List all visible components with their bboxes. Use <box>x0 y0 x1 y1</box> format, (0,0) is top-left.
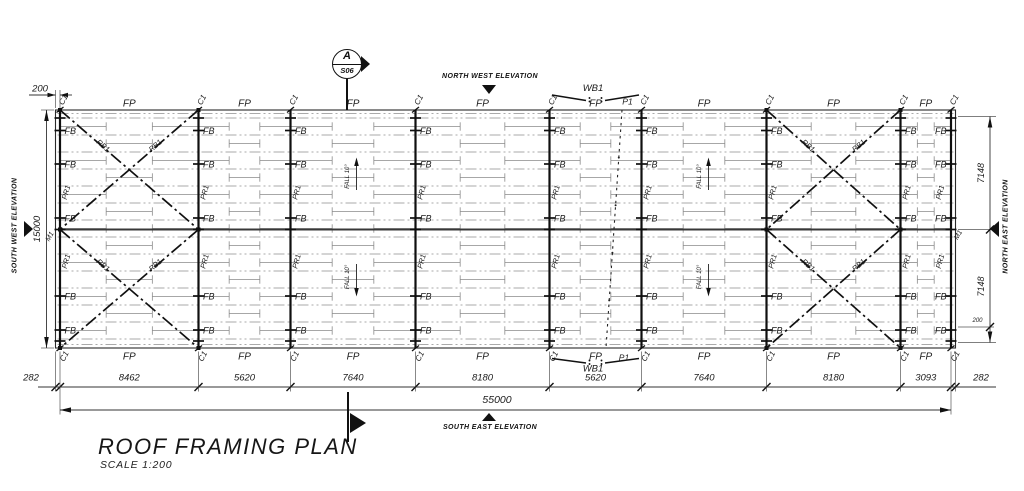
pr1-label: PR1 <box>198 184 210 200</box>
p1-node <box>608 299 610 301</box>
fall-arrowhead <box>354 288 359 297</box>
north-west-elevation-label: NORTH WEST ELEVATION <box>430 73 550 80</box>
dim-text: 7148 <box>976 276 986 296</box>
pr1-label: PR1 <box>549 253 561 269</box>
dim-text: 7640 <box>693 373 715 384</box>
fb-label: FB <box>905 160 917 170</box>
fb-label: FB <box>420 160 432 170</box>
section-sheet-number: S06 <box>333 65 361 79</box>
dim-arrow <box>940 407 951 412</box>
fb-label: FB <box>420 214 432 224</box>
dim-text: 3093 <box>915 373 937 384</box>
rb1-label: RB1 <box>850 137 867 153</box>
dim-text: 200 <box>31 84 49 95</box>
dim-text: 7148 <box>976 163 986 183</box>
dim-text: 5620 <box>234 373 256 384</box>
fp-label: FP <box>919 352 932 363</box>
pr1-label: PR1 <box>900 253 912 269</box>
pr1-label: PR1 <box>934 184 946 200</box>
pr1-label: PR1 <box>290 184 302 200</box>
c1-label: C1 <box>195 93 208 106</box>
fp-label: FP <box>238 99 251 110</box>
p1-node <box>611 252 613 254</box>
pr1-label: PR1 <box>290 253 302 269</box>
south-east-elevation-triangle-icon <box>482 413 496 421</box>
pr1-label: PR1 <box>198 253 210 269</box>
brace-node <box>58 108 62 112</box>
fall-label: FALL 10° <box>345 164 351 189</box>
p1-node <box>615 204 617 206</box>
brace-node <box>899 108 903 112</box>
section-letter: A <box>333 50 361 65</box>
dim-text: 282 <box>22 373 40 384</box>
fb-label: FB <box>65 292 77 302</box>
fb-label: FB <box>203 214 215 224</box>
fb-label: FB <box>295 214 307 224</box>
dim-text-overall: 55000 <box>482 394 511 406</box>
pr1-label: PR1 <box>900 184 912 200</box>
c1-label: C1 <box>897 93 910 106</box>
fp-label: FP <box>123 352 136 363</box>
fb-label: FB <box>203 292 215 302</box>
fb-label: FB <box>203 160 215 170</box>
fb-label: FB <box>771 126 783 136</box>
south-west-elevation-triangle-icon <box>24 221 33 237</box>
fb-label: FB <box>935 326 947 336</box>
fp-label: FP <box>827 99 840 110</box>
dim-text: 200 <box>971 318 983 324</box>
north-west-elevation-triangle-icon <box>482 85 496 94</box>
rb1-label: RB1 <box>800 137 817 153</box>
drawing-scale: SCALE 1:200 <box>100 459 172 471</box>
section-marker: A S06 <box>332 49 362 79</box>
fb-label: FB <box>554 214 566 224</box>
fb-label: FB <box>646 326 658 336</box>
fall-arrowhead <box>706 288 711 297</box>
fall-arrowhead <box>706 158 711 167</box>
c1-label: C1 <box>412 93 425 106</box>
fb-label: FB <box>295 126 307 136</box>
pr1-label: PR1 <box>415 184 427 200</box>
dim-text: 5620 <box>585 373 607 384</box>
fb-label: FB <box>935 160 947 170</box>
brace-node <box>58 346 62 350</box>
pr1-label: PR1 <box>766 253 778 269</box>
pr1-label: PR1 <box>641 253 653 269</box>
fb-label: FB <box>554 160 566 170</box>
south-west-elevation-label: SOUTH WEST ELEVATION <box>12 156 23 296</box>
brace-node <box>58 228 62 232</box>
fb-label: FB <box>905 326 917 336</box>
c1-label: C1 <box>948 93 961 106</box>
fb-label: FB <box>554 126 566 136</box>
brace-node <box>765 228 769 232</box>
rb1-label: RB1 <box>95 137 112 153</box>
fb-label: FB <box>65 326 77 336</box>
fb-label: FB <box>65 214 77 224</box>
fb-label: FB <box>554 326 566 336</box>
fb-label: FB <box>203 326 215 336</box>
fb-label: FB <box>905 292 917 302</box>
p1-label: P1 <box>619 353 630 363</box>
section-cut-line <box>346 79 348 110</box>
fp-label: FP <box>476 352 489 363</box>
fp-label: FP <box>238 352 251 363</box>
fb-label: FB <box>646 214 658 224</box>
fp-label: FP <box>589 352 602 363</box>
brace-node <box>765 108 769 112</box>
fb-label: FB <box>935 126 947 136</box>
pr1-label: PR1 <box>934 253 946 269</box>
fb-label: FB <box>420 326 432 336</box>
roof-framing-plan-sheet: RB1RB1RB1RB1RB1RB1RB1RB1WB1WB1P1P1FPFPFP… <box>0 0 1024 491</box>
fp-label: FP <box>476 99 489 110</box>
fp-label: FP <box>919 99 932 110</box>
fb-label: FB <box>420 292 432 302</box>
fall-arrowhead <box>354 158 359 167</box>
dim-arrow <box>48 93 56 97</box>
dim-arrow <box>44 337 49 348</box>
fall-label: FALL 10° <box>345 264 351 289</box>
pr1-label: PR1 <box>60 184 72 200</box>
section-marker-circle-icon: A S06 <box>332 49 362 79</box>
fp-label: FP <box>827 352 840 363</box>
dim-text: 8462 <box>119 373 141 384</box>
south-east-elevation-label: SOUTH EAST ELEVATION <box>430 424 550 431</box>
dim-text: 282 <box>972 373 990 384</box>
brace-node <box>197 346 201 350</box>
c1-label: C1 <box>638 93 651 106</box>
dim-text: 8180 <box>472 373 494 384</box>
brace-node <box>197 228 201 232</box>
fb-label: FB <box>646 126 658 136</box>
section-direction-triangle-icon <box>361 56 370 72</box>
dimensions: 2828462562076408180562076408180309328255… <box>22 84 996 415</box>
fb-label: FB <box>295 292 307 302</box>
fb-label: FB <box>771 160 783 170</box>
dim-text: 15000 <box>32 215 43 242</box>
p1-node <box>618 157 620 159</box>
fb-label: FB <box>905 126 917 136</box>
pr1-label: PR1 <box>549 184 561 200</box>
dim-arrow <box>44 110 49 121</box>
fp-label: FP <box>347 352 360 363</box>
c1-label: C1 <box>763 93 776 106</box>
fp-label: FP <box>347 99 360 110</box>
rb1-label: RB1 <box>147 137 164 153</box>
brace-node <box>899 346 903 350</box>
brace-node <box>765 346 769 350</box>
wb1-label: WB1 <box>583 83 604 94</box>
brace-node <box>899 228 903 232</box>
fp-label: FP <box>123 99 136 110</box>
fb-label: FB <box>935 214 947 224</box>
c1-label: C1 <box>287 93 300 106</box>
dim-text: 7640 <box>342 373 364 384</box>
brace-node <box>197 108 201 112</box>
fb-label: FB <box>935 292 947 302</box>
fp-label: FP <box>698 352 711 363</box>
fb-label: FB <box>771 292 783 302</box>
fb-label: FB <box>646 292 658 302</box>
fb-label: FB <box>295 160 307 170</box>
pr1-label: PR1 <box>415 253 427 269</box>
fb-label: FB <box>554 292 566 302</box>
fb-label: FB <box>65 160 77 170</box>
fb-label: FB <box>420 126 432 136</box>
fb-label: FB <box>646 160 658 170</box>
fb-label: FB <box>771 214 783 224</box>
section-direction-triangle-bottom-icon <box>350 413 366 433</box>
dim-text: 8180 <box>823 373 845 384</box>
pr1-label: PR1 <box>641 184 653 200</box>
north-east-elevation-label: NORTH EAST ELEVATION <box>1003 157 1014 297</box>
dim-arrow <box>988 332 993 343</box>
fb-label: FB <box>203 126 215 136</box>
dim-arrow <box>988 117 993 128</box>
pr1-label: PR1 <box>60 253 72 269</box>
fall-label: FALL 10° <box>697 264 703 289</box>
drawing-title: ROOF FRAMING PLAN <box>98 434 358 460</box>
fall-label: FALL 10° <box>697 164 703 189</box>
pr1-label: PR1 <box>766 184 778 200</box>
p1-label: P1 <box>622 97 633 107</box>
dim-arrow <box>60 407 71 412</box>
fp-label: FP <box>589 99 602 110</box>
fb-label: FB <box>905 214 917 224</box>
fp-label: FP <box>698 99 711 110</box>
fb-label: FB <box>771 326 783 336</box>
fb-label: FB <box>65 126 77 136</box>
north-east-elevation-triangle-icon <box>990 221 999 237</box>
m1-label: M1 <box>953 229 964 241</box>
fb-label: FB <box>295 326 307 336</box>
